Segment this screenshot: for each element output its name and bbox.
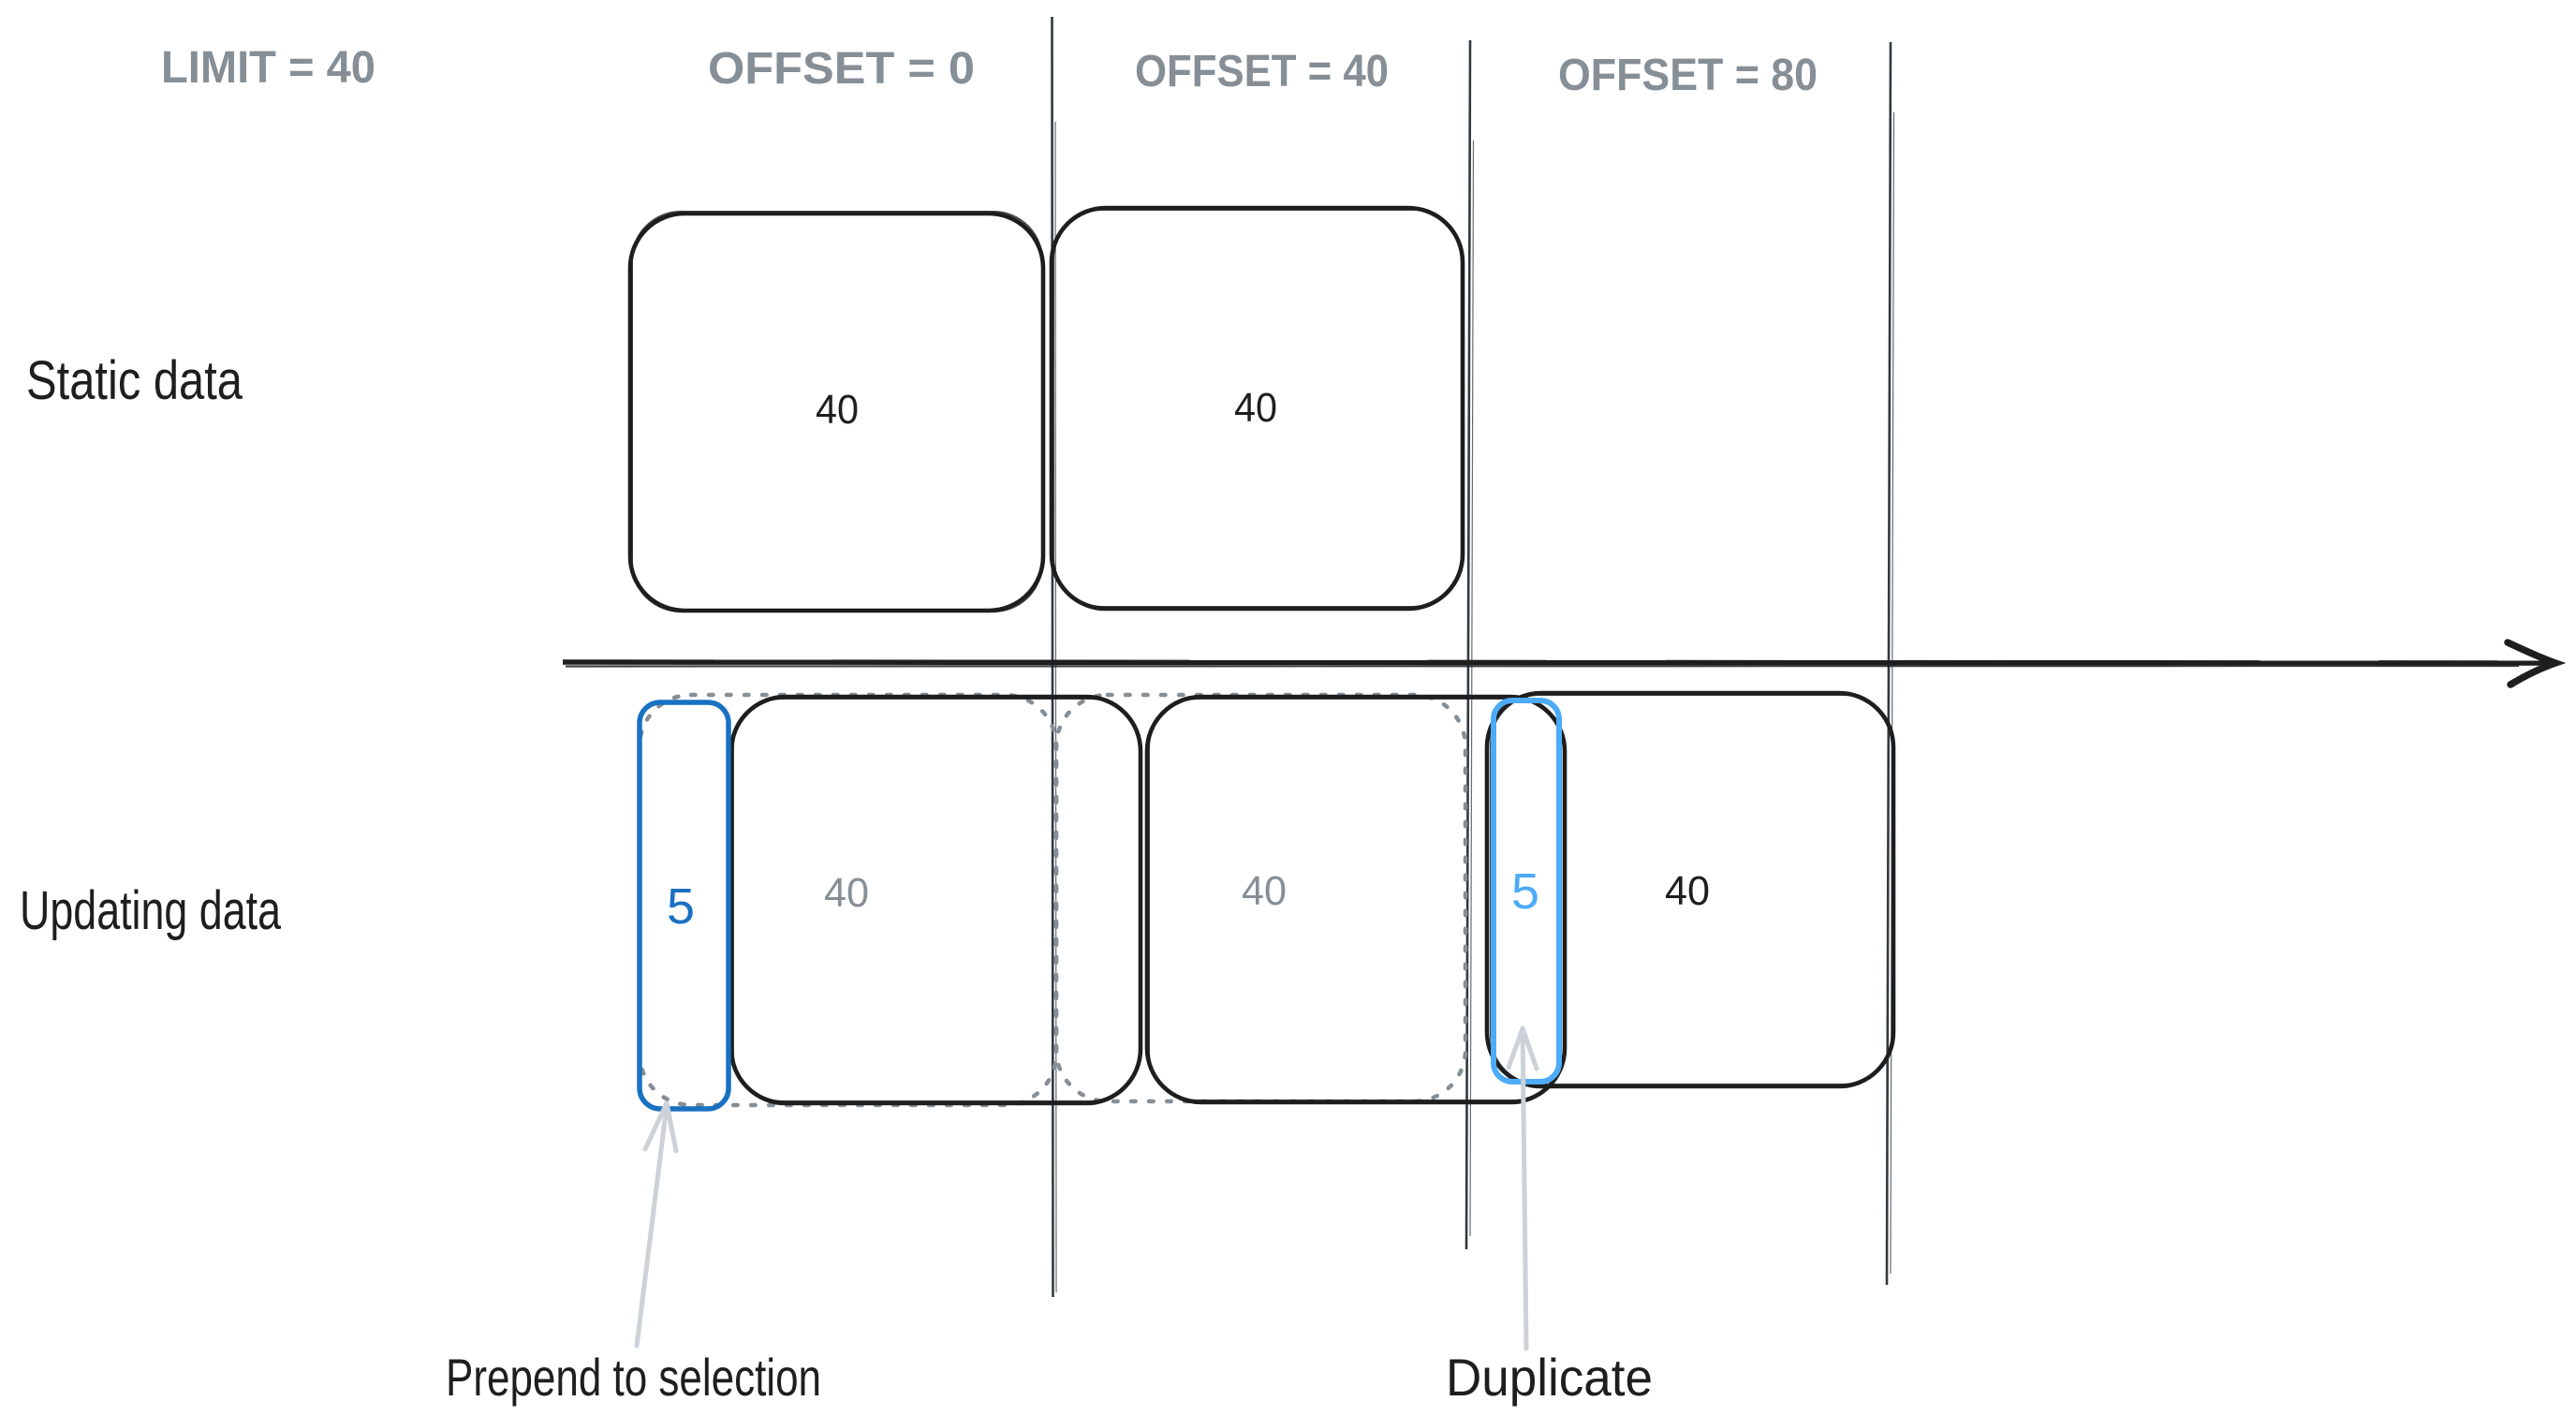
svg-text:Duplicate: Duplicate (1446, 1348, 1653, 1407)
svg-text:40: 40 (824, 870, 869, 916)
svg-text:40: 40 (1234, 385, 1277, 431)
svg-text:OFFSET = 40: OFFSET = 40 (1135, 47, 1389, 96)
svg-text:OFFSET = 80: OFFSET = 80 (1558, 51, 1818, 100)
svg-text:40: 40 (1665, 868, 1710, 914)
svg-text:Static data: Static data (26, 350, 243, 411)
svg-text:5: 5 (1511, 863, 1539, 920)
svg-text:OFFSET = 0: OFFSET = 0 (708, 44, 975, 94)
svg-text:LIMIT = 40: LIMIT = 40 (161, 43, 375, 93)
svg-text:40: 40 (816, 387, 859, 433)
svg-text:40: 40 (1242, 868, 1287, 914)
svg-text:Prepend to selection: Prepend to selection (446, 1348, 821, 1407)
svg-text:5: 5 (667, 878, 695, 935)
svg-text:Updating data: Updating data (20, 880, 282, 941)
